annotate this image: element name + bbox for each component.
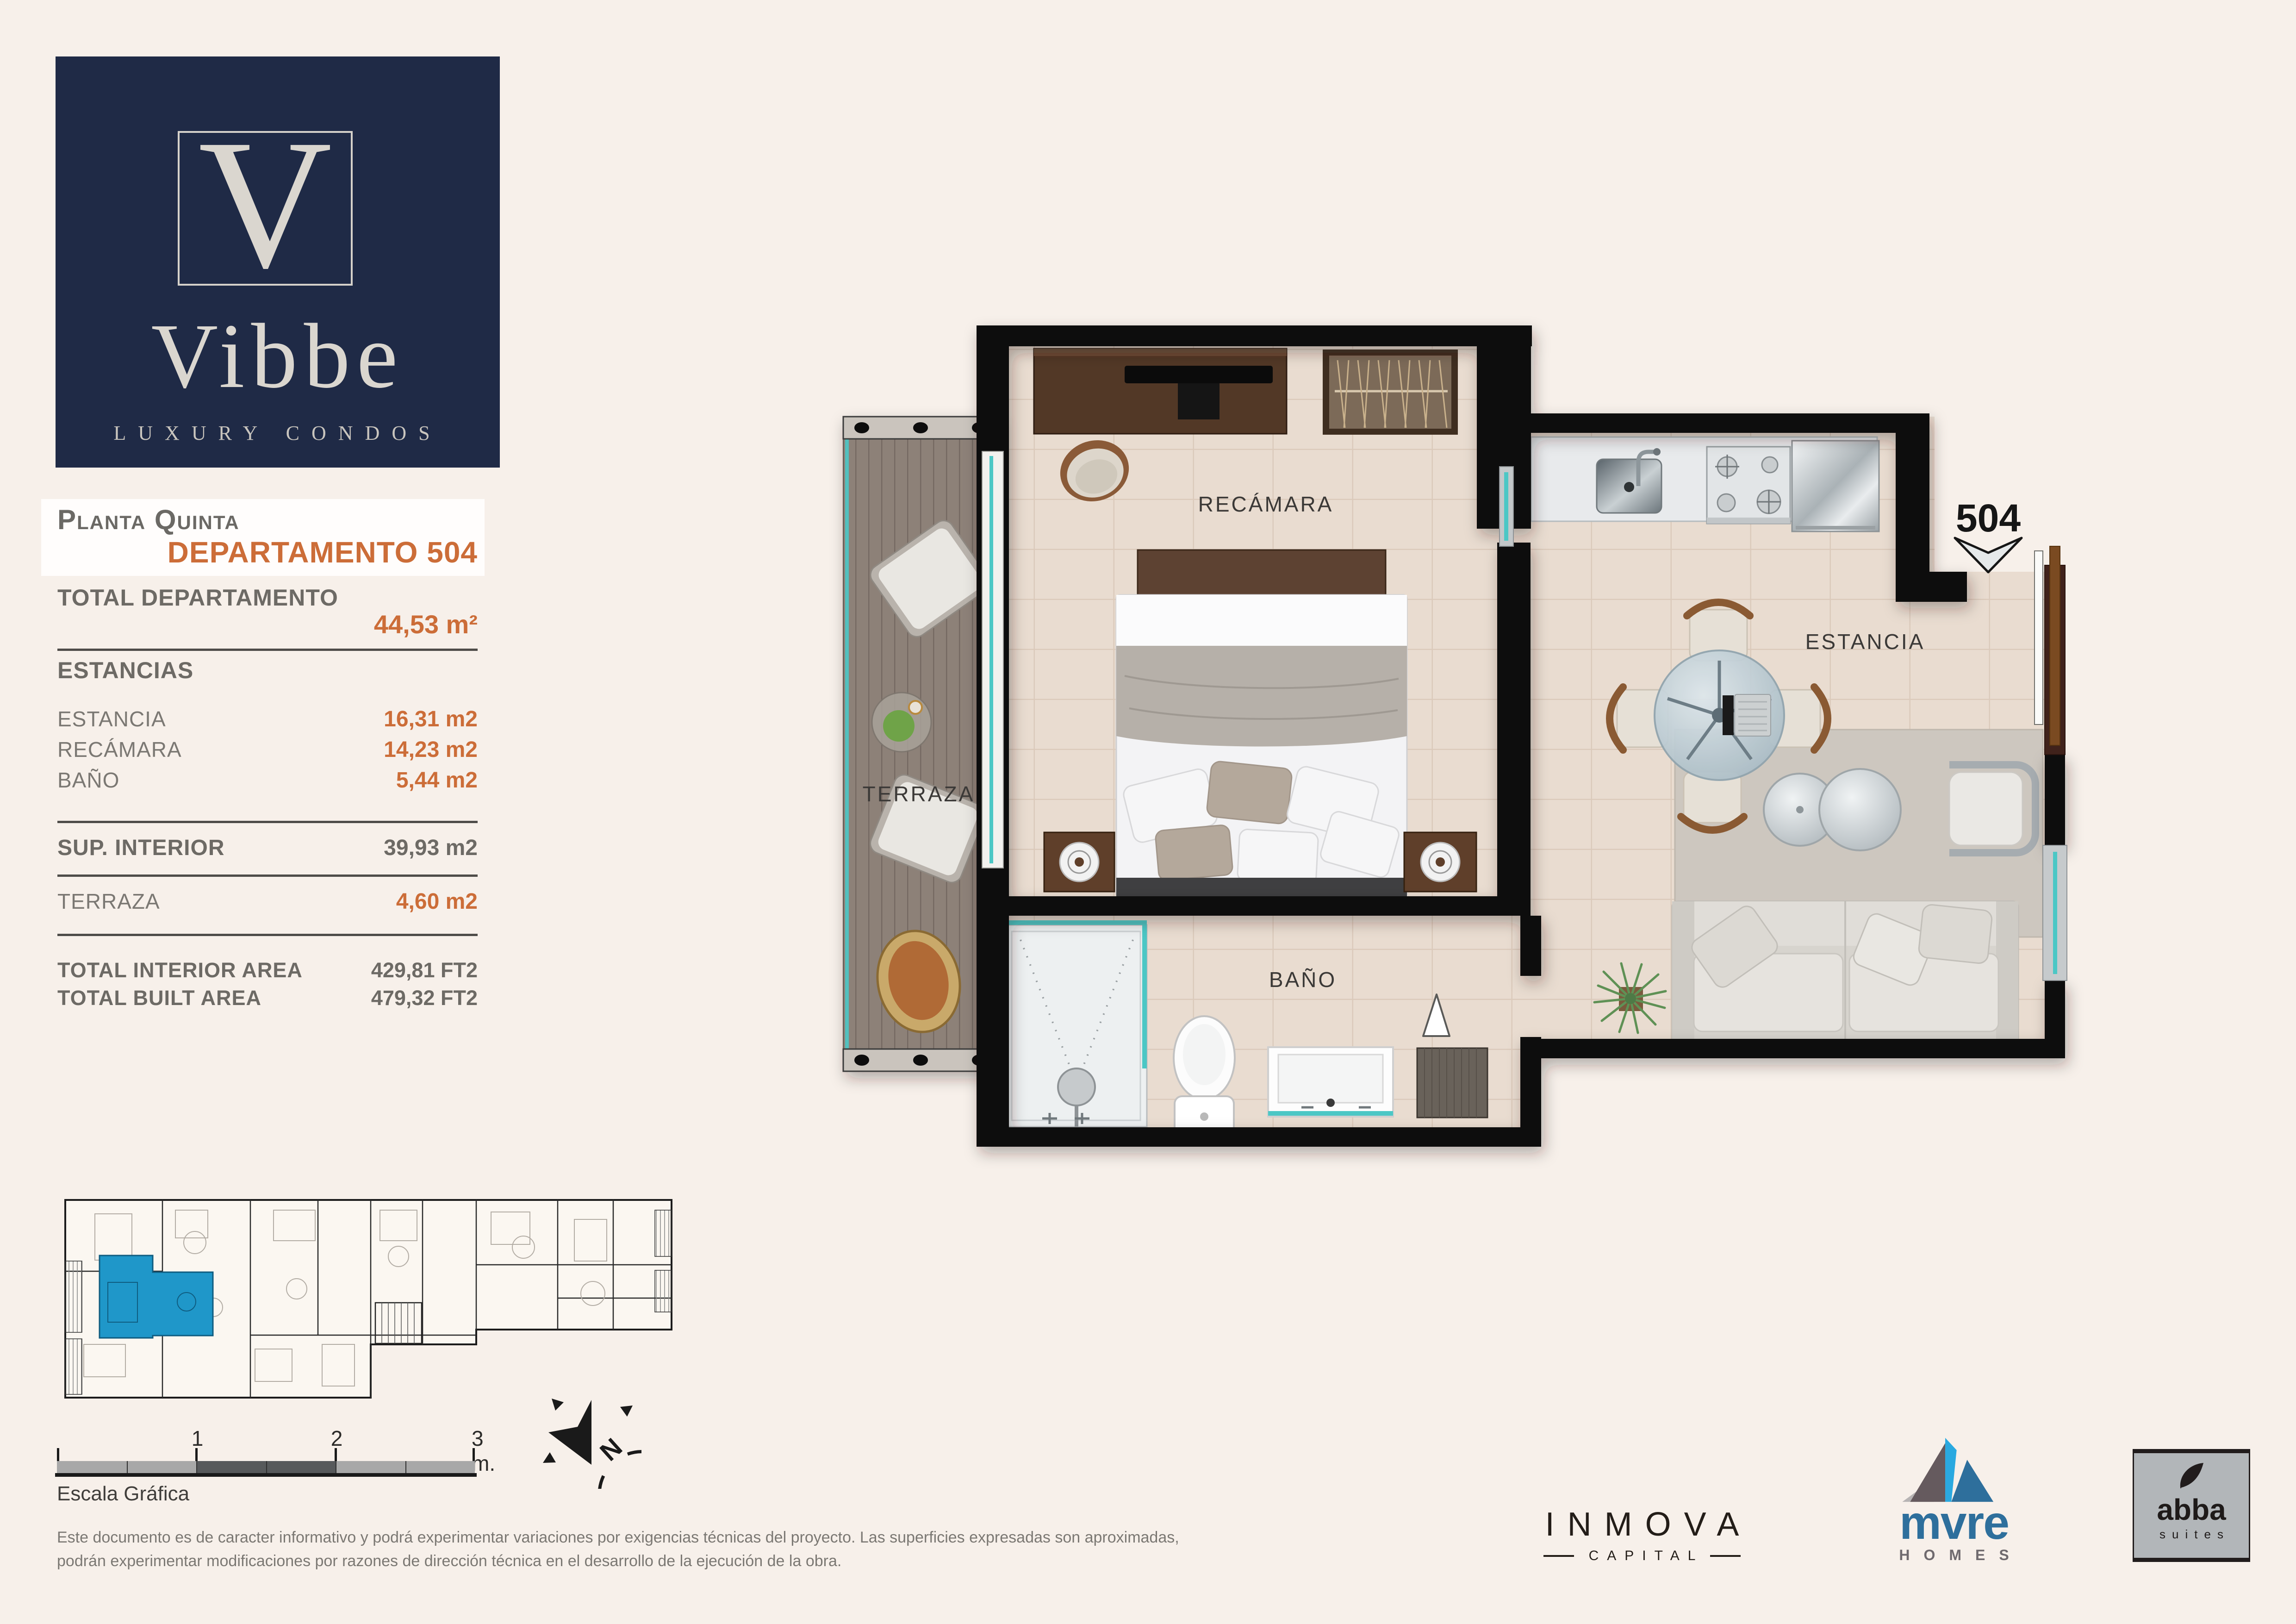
entry-door-leaf: [2035, 551, 2043, 725]
fridge: [1792, 441, 1879, 531]
mvre-mountains-icon: [1896, 1437, 2012, 1503]
brochure-page: V Vibbe LUXURY CONDOS Planta Quinta DEPA…: [0, 0, 2296, 1624]
unit-title: DEPARTAMENTO 504: [57, 535, 478, 569]
nightstand-left: [1044, 832, 1114, 892]
total-interior-row: TOTAL INTERIOR AREA 429,81 FT2: [57, 958, 478, 982]
area-row-recamara: RECÁMARA 14,23 m2: [57, 737, 478, 762]
row-value: 4,60 m2: [396, 889, 478, 914]
row-value: 5,44 m2: [396, 768, 478, 793]
row-label: BAÑO: [57, 768, 119, 793]
laptop: [1723, 694, 1771, 736]
row-value: 39,93 m2: [384, 835, 478, 861]
row-value: 479,32 FT2: [371, 986, 478, 1010]
total-dep-value: 44,53 m²: [57, 609, 478, 639]
nightstand-right: [1404, 832, 1476, 892]
interior-row: SUP. INTERIOR 39,93 m2: [57, 835, 478, 861]
floor-plan: RECÁMARA ESTANCIA BAÑO TERRAZA 504: [824, 306, 2101, 1185]
room-label-terraza: TERRAZA: [863, 782, 975, 806]
row-value: 14,23 m2: [384, 737, 478, 762]
media-console: [1034, 349, 1287, 434]
scale-tick-label: 2: [331, 1426, 343, 1451]
scale-segment: [196, 1461, 266, 1473]
kitchen: [1531, 437, 1879, 531]
sections-label: ESTANCIAS: [57, 657, 193, 684]
scale-bar-segments: [57, 1461, 475, 1473]
compass-icon: N: [537, 1384, 641, 1489]
area-row-estancia: ESTANCIA 16,31 m2: [57, 706, 478, 732]
row-label: TOTAL BUILT AREA: [57, 986, 261, 1010]
row-label: RECÁMARA: [57, 737, 182, 762]
vanity: [1268, 1047, 1393, 1117]
scale-segment: [127, 1461, 197, 1473]
abba-leaf-icon: [2175, 1461, 2208, 1494]
brand-tagline: LUXURY CONDOS: [56, 421, 500, 445]
brand-logo: V Vibbe LUXURY CONDOS: [56, 56, 500, 468]
terrace-rail-bottom: [843, 1049, 998, 1071]
scale-bar: 1 2 3 m. Escala Gráfica: [57, 1426, 479, 1537]
floor-label: Planta Quinta: [57, 504, 240, 536]
scale-tick-label: 3 m.: [472, 1426, 495, 1476]
dash-icon: [1543, 1555, 1574, 1557]
brand-name: Vibbe: [56, 310, 500, 403]
disclaimer: Este documento es de caracter informativ…: [57, 1526, 1482, 1573]
unit-number-label: 504: [1956, 496, 2021, 540]
disclaimer-line-1: Este documento es de caracter informativ…: [57, 1526, 1482, 1549]
row-label: SUP. INTERIOR: [57, 835, 225, 861]
scale-segment: [266, 1461, 336, 1473]
plant-pot: [883, 710, 915, 742]
mvre-sub: HOMES: [1885, 1547, 2023, 1564]
dash-icon: [1710, 1555, 1741, 1557]
coffee-table: [1819, 769, 1901, 850]
scale-segment: [405, 1461, 475, 1473]
scale-caption: Escala Gráfica: [57, 1482, 189, 1505]
total-built-row: TOTAL BUILT AREA 479,32 FT2: [57, 986, 478, 1010]
scale-segment: [336, 1461, 405, 1473]
scale-tick-label: 1: [192, 1426, 204, 1451]
area-row-bano: BAÑO 5,44 m2: [57, 768, 478, 793]
toilet: [1174, 1016, 1235, 1135]
row-label: ESTANCIA: [57, 706, 166, 731]
logo-v-frame: V: [178, 131, 353, 286]
scale-baseline: [55, 1473, 477, 1477]
row-value: 429,81 FT2: [371, 958, 478, 982]
abba-suites-logo: abba suites: [2133, 1449, 2250, 1562]
bath-cabinet: [1417, 1048, 1487, 1118]
abba-sub: suites: [2134, 1527, 2249, 1542]
room-label-recamara: RECÁMARA: [1198, 492, 1334, 516]
terrace-row: TERRAZA 4,60 m2: [57, 889, 478, 914]
sofa: [1672, 901, 2018, 1044]
shower: [1005, 920, 1147, 1127]
logo-v-letter: V: [180, 112, 351, 297]
mvre-homes-logo: mvre HOMES: [1885, 1437, 2023, 1564]
disclaimer-line-2: podrán experimentar modificaciones por r…: [57, 1549, 1482, 1573]
row-value: 16,31 m2: [384, 706, 478, 732]
abba-name: abba: [2134, 1495, 2249, 1524]
inmova-capital-logo: INMOVA CAPITAL: [1517, 1505, 1767, 1564]
row-label: TOTAL INTERIOR AREA: [57, 958, 303, 982]
scale-segment: [57, 1461, 127, 1473]
inmova-subrow: CAPITAL: [1517, 1548, 1767, 1564]
stove: [1707, 447, 1790, 524]
inmova-sub: CAPITAL: [1580, 1548, 1704, 1564]
room-label-bano: BAÑO: [1269, 968, 1337, 992]
closet: [1323, 350, 1458, 435]
compass-north-label: N: [594, 1432, 628, 1467]
divider: [57, 934, 478, 936]
inmova-name: INMOVA: [1517, 1505, 1767, 1543]
terrace-rail-top: [843, 417, 998, 439]
bed: [1116, 595, 1407, 897]
divider: [57, 649, 478, 651]
unit-entry-arrow-icon: [1955, 538, 2022, 572]
bed-foot-shelf: [1138, 550, 1386, 595]
room-label-estancia: ESTANCIA: [1805, 630, 1925, 654]
key-plan: [56, 1192, 678, 1400]
mvre-name: mvre: [1885, 1503, 2023, 1543]
divider: [57, 821, 478, 823]
total-dep-label: TOTAL DEPARTAMENTO: [57, 584, 338, 611]
divider: [57, 874, 478, 877]
row-label: TERRAZA: [57, 889, 160, 914]
